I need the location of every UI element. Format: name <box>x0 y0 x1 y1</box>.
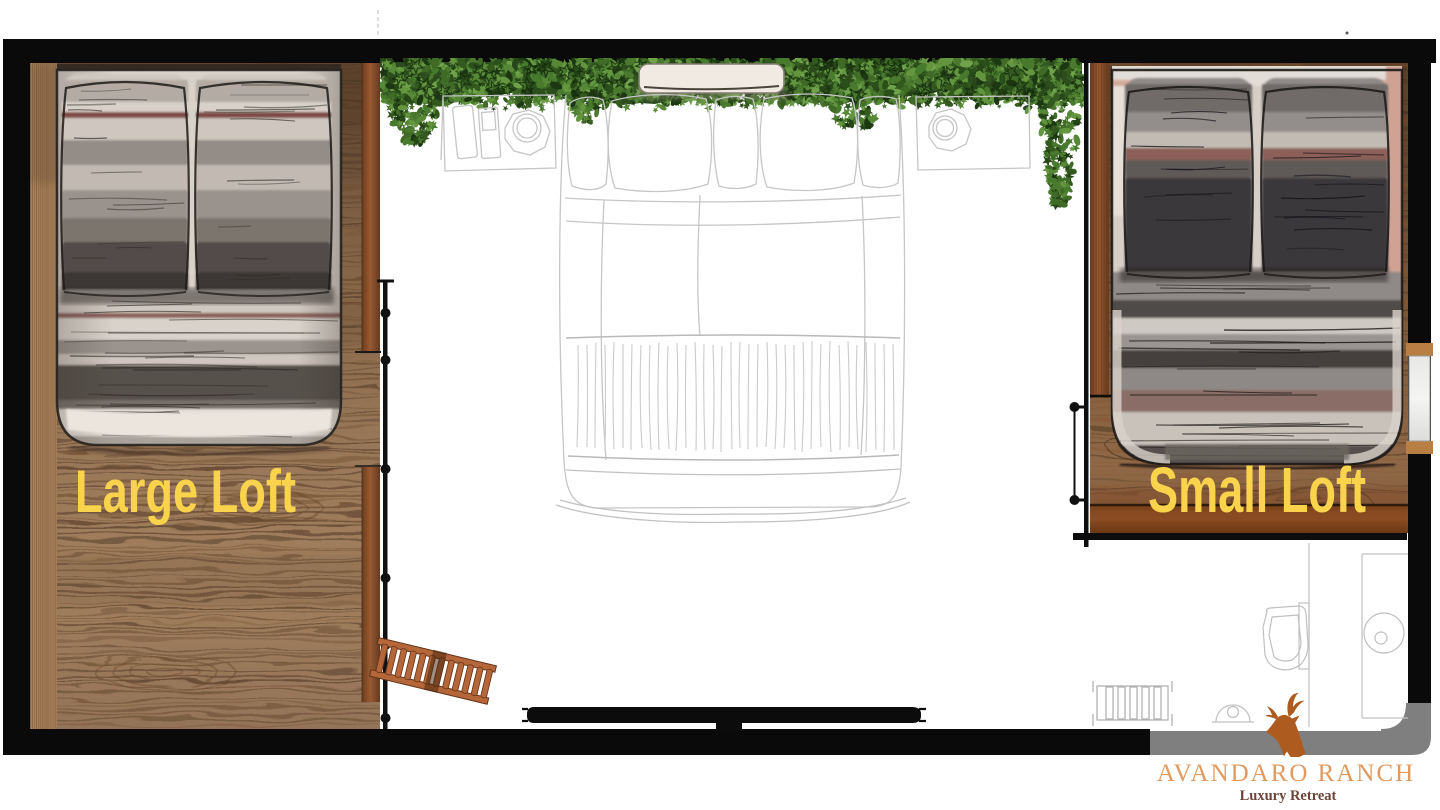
svg-text:Large Loft: Large Loft <box>75 458 296 525</box>
svg-text:Small Loft: Small Loft <box>1148 454 1366 526</box>
svg-text:AVANDARO RANCH: AVANDARO RANCH <box>1157 760 1415 787</box>
svg-text:Luxury Retreat: Luxury Retreat <box>1240 788 1337 804</box>
